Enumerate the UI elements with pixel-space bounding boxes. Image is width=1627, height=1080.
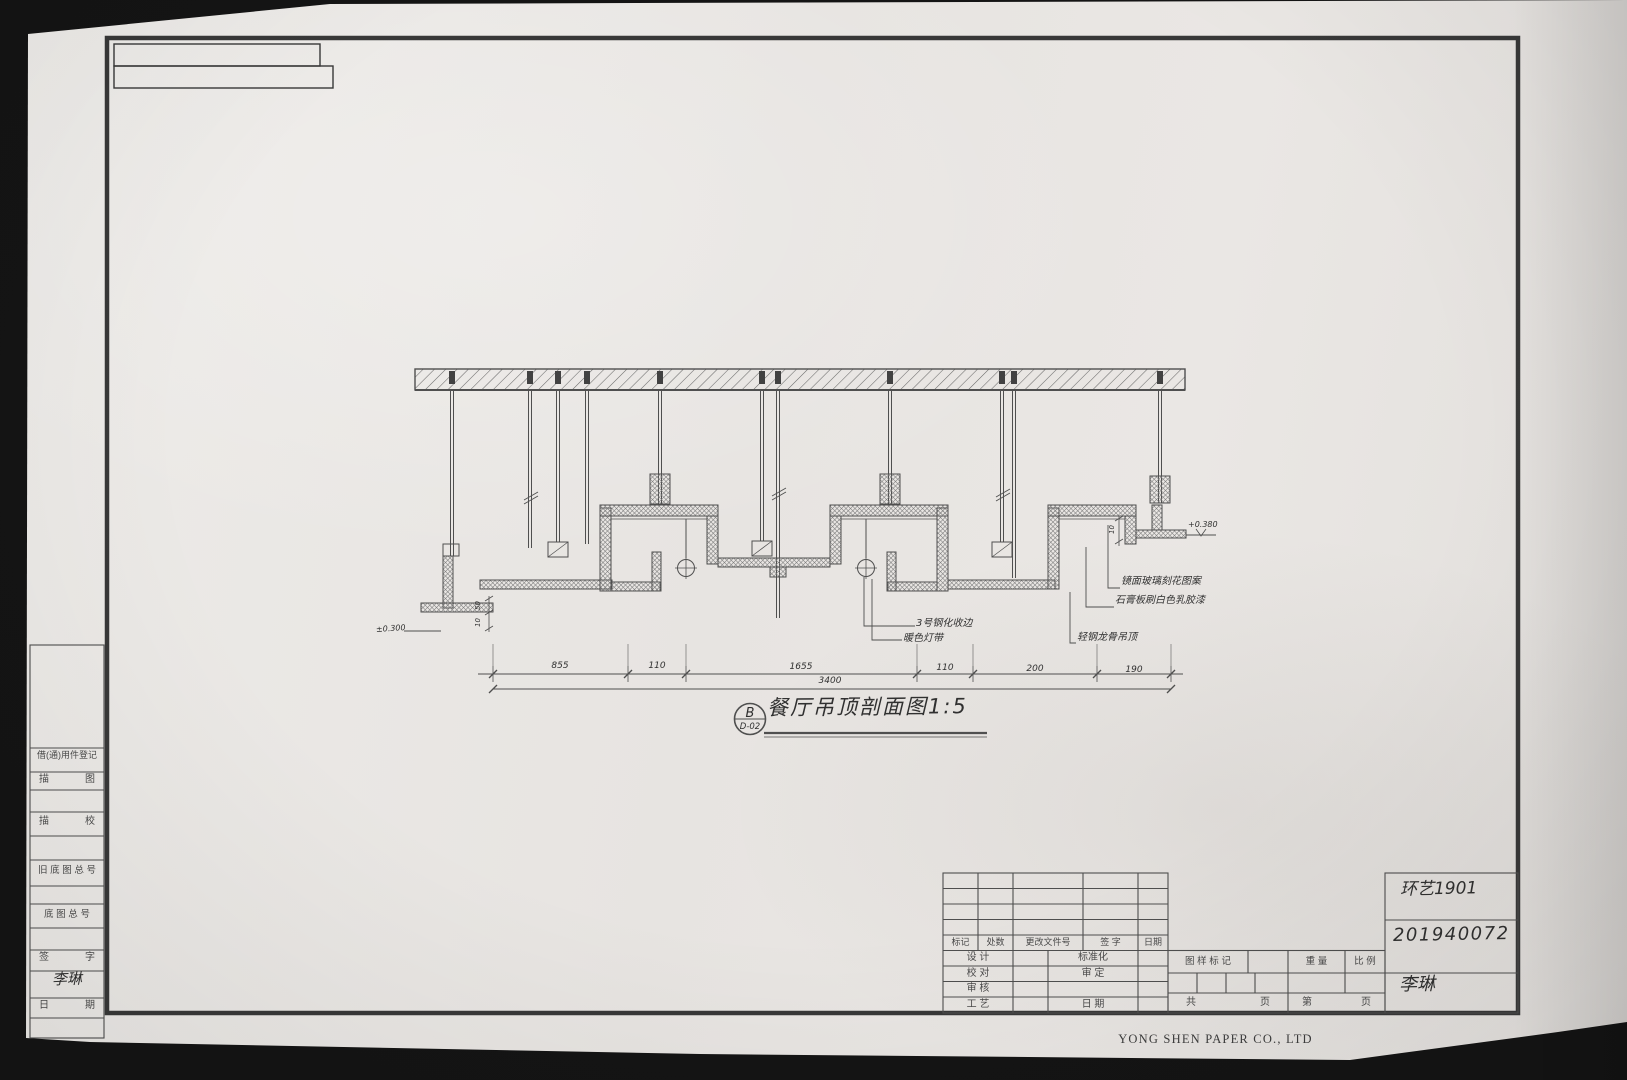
detail-bubble-code: D-02 xyxy=(733,723,767,732)
dim-segment-label-3: 1655 xyxy=(771,663,831,672)
pages-total-unit: 页 xyxy=(1260,998,1270,1008)
left-strip-row-base-no: 底 图 总 号 xyxy=(32,910,102,920)
rev-header-mark: 标记 xyxy=(943,938,978,947)
annotation-steel-keel: 轻钢龙骨吊顶 xyxy=(1077,633,1137,643)
rev-header-count: 处数 xyxy=(978,938,1013,947)
pages-number-unit: 页 xyxy=(1361,998,1371,1008)
left-strip-label: 签 xyxy=(39,953,49,963)
title-underline xyxy=(764,733,987,737)
titleblock-date-label: 日 期 xyxy=(1048,1000,1138,1010)
stamp-scale-label: 比 例 xyxy=(1345,957,1385,967)
sheet-frame xyxy=(107,38,1518,1013)
ceiling-board-profile xyxy=(421,505,1186,612)
left-strip-row-old-base-no: 旧 底 图 总 号 xyxy=(32,866,102,876)
left-strip-label: 校 xyxy=(85,817,95,827)
dim-small-label-1: 50 xyxy=(475,601,482,610)
titleblock-approve-label: 审 定 xyxy=(1048,969,1138,979)
titleblock-check-label: 校 对 xyxy=(943,969,1013,979)
annotation-light-strip: 暖色灯带 xyxy=(903,634,943,644)
titleblock-design-label: 设 计 xyxy=(943,953,1013,963)
left-strip-label: 期 xyxy=(85,1001,95,1011)
pages-number-cell: 第页 xyxy=(1288,998,1385,1008)
titleblock-standard-label: 标准化 xyxy=(1048,953,1138,963)
left-strip-row-trace-drawing: 描图 xyxy=(32,775,102,785)
pages-number-label: 第 xyxy=(1302,998,1312,1008)
stamp-weight-label: 重 量 xyxy=(1288,957,1345,967)
pages-total-cell: 共页 xyxy=(1168,998,1288,1008)
annotation-mirror-glass: 镜面玻璃刻花图案 xyxy=(1121,577,1201,587)
photo-of-drawing-sheet: { "sheet": { "footer_company": "YONG SHE… xyxy=(0,0,1627,1080)
rev-header-date: 日期 xyxy=(1138,938,1168,947)
detail-bubble-letter: B xyxy=(741,707,759,720)
left-strip-label: 描 xyxy=(39,775,49,785)
dim-segment-label-6: 190 xyxy=(1104,666,1164,675)
left-strip-label: 图 xyxy=(85,775,95,785)
dim-total-label: 3400 xyxy=(800,677,860,686)
titleblock-craft-label: 工 艺 xyxy=(943,1000,1013,1010)
rev-header-doc-no: 更改文件号 xyxy=(1013,938,1083,947)
titleblock-audit-label: 审 核 xyxy=(943,984,1013,994)
dim-small-label-2: 10 xyxy=(475,618,482,627)
rod-break-marks xyxy=(524,488,1010,504)
small-vertical-dims xyxy=(485,516,1123,632)
annotation-edge-trim: 3号钢化收边 xyxy=(916,619,972,629)
left-strip-signature-handwritten: 李琳 xyxy=(32,971,102,988)
left-strip-label: 描 xyxy=(39,817,49,827)
rev-header-signature: 签 字 xyxy=(1083,938,1138,947)
annotation-right-elevation: +0.380 xyxy=(1188,521,1218,529)
drawing-linework xyxy=(0,0,1627,1080)
left-strip-label: 日 xyxy=(39,1001,49,1011)
pages-total-label: 共 xyxy=(1186,998,1196,1008)
left-strip-row-borrow-register: 借(通)用件登记 xyxy=(32,751,102,760)
left-strip-row-signature-label: 签字 xyxy=(32,953,102,963)
stamp-mark-label: 图 样 标 记 xyxy=(1168,957,1248,967)
left-strip-row-date-label: 日期 xyxy=(32,1001,102,1011)
handwritten-name: 李琳 xyxy=(1399,976,1435,995)
paper-company-footer: YONG SHEN PAPER CO., LTD xyxy=(1093,1033,1338,1046)
handwritten-student-id: 201940072 xyxy=(1393,925,1510,945)
annotation-gypsum-board: 石膏板刷白色乳胶漆 xyxy=(1115,596,1205,606)
detail-title: 餐厅吊顶剖面图1:5 xyxy=(767,696,968,719)
dim-segment-label-1: 855 xyxy=(530,662,590,671)
dim-segment-label-4: 110 xyxy=(915,664,975,673)
left-strip-label: 字 xyxy=(85,953,95,963)
dim-small-label-3: 10 xyxy=(1109,525,1116,534)
dim-segment-label-5: 200 xyxy=(1005,665,1065,674)
left-strip-row-trace-check: 描校 xyxy=(32,817,102,827)
handwritten-class: 环艺1901 xyxy=(1400,880,1478,898)
dim-segment-label-2: 110 xyxy=(627,662,687,671)
